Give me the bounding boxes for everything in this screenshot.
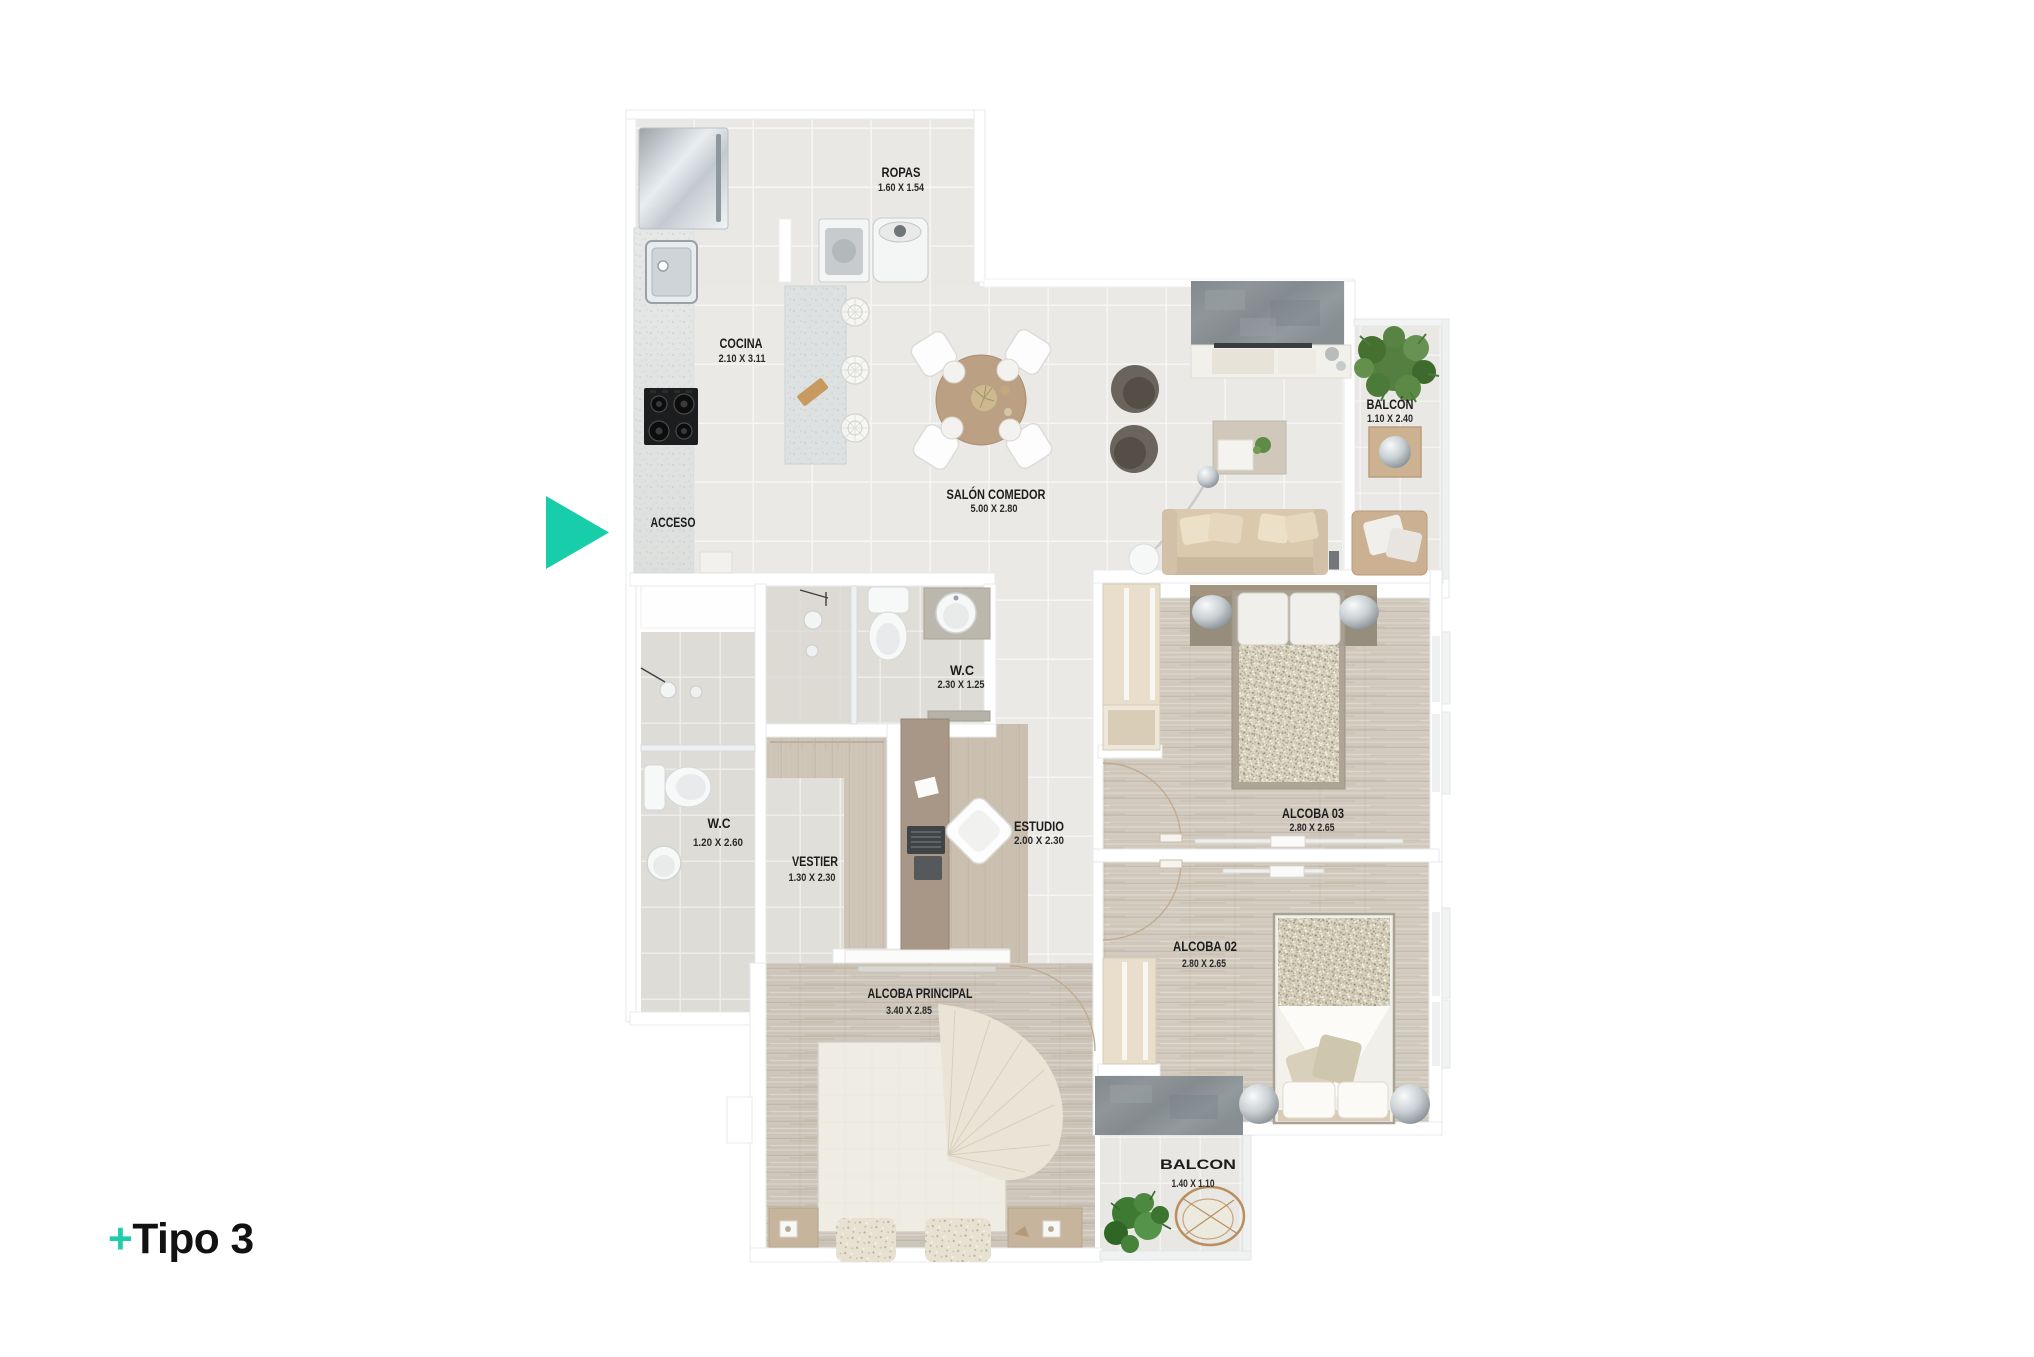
svg-text:ALCOBA 03: ALCOBA 03	[1282, 806, 1344, 821]
svg-text:W.C: W.C	[950, 663, 974, 678]
svg-text:1.30 X 2.30: 1.30 X 2.30	[789, 872, 836, 884]
svg-text:2.30 X 1.25: 2.30 X 1.25	[938, 679, 985, 691]
svg-text:1.60 X 1.54: 1.60 X 1.54	[878, 182, 925, 194]
svg-text:2.10 X 3.11: 2.10 X 3.11	[719, 353, 766, 365]
svg-text:ACCESO: ACCESO	[651, 515, 696, 530]
svg-text:COCINA: COCINA	[720, 336, 763, 351]
svg-text:1.40 X 1.10: 1.40 X 1.10	[1172, 1178, 1215, 1190]
svg-text:BALCÓN: BALCÓN	[1367, 397, 1414, 412]
svg-text:3.40 X 2.85: 3.40 X 2.85	[886, 1005, 932, 1017]
svg-text:ALCOBA PRINCIPAL: ALCOBA PRINCIPAL	[868, 986, 973, 1001]
svg-text:1.10 X 2.40: 1.10 X 2.40	[1367, 413, 1413, 425]
svg-text:SALÓN COMEDOR: SALÓN COMEDOR	[947, 487, 1046, 502]
svg-text:ROPAS: ROPAS	[882, 165, 921, 180]
svg-text:ESTUDIO: ESTUDIO	[1014, 819, 1064, 834]
svg-text:VESTIER: VESTIER	[792, 854, 838, 869]
svg-text:BALCON: BALCON	[1160, 1157, 1236, 1172]
svg-text:5.00 X 2.80: 5.00 X 2.80	[971, 503, 1018, 515]
svg-text:W.C: W.C	[708, 816, 731, 831]
svg-text:2.80 X 2.65: 2.80 X 2.65	[1182, 958, 1226, 970]
svg-text:+Tipo 3: +Tipo 3	[108, 1216, 254, 1263]
svg-text:2.00 X 2.30: 2.00 X 2.30	[1014, 835, 1064, 847]
svg-text:ALCOBA 02: ALCOBA 02	[1173, 939, 1237, 954]
svg-text:2.80 X 2.65: 2.80 X 2.65	[1290, 822, 1335, 834]
svg-text:1.20 X 2.60: 1.20 X 2.60	[693, 837, 743, 849]
